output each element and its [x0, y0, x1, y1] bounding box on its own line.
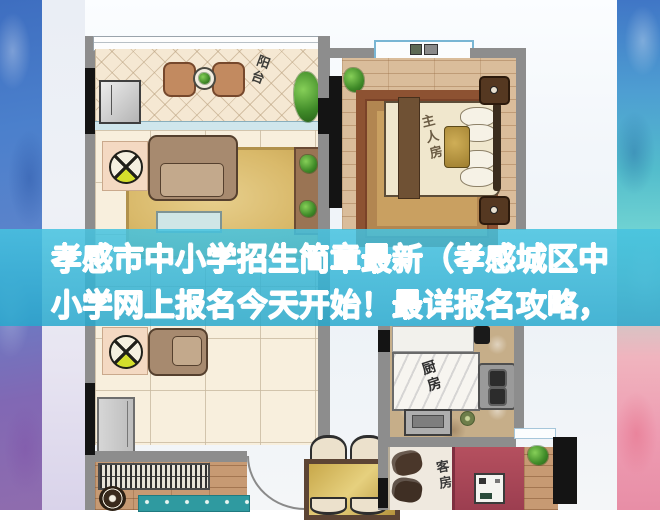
guest-black-wall — [553, 437, 577, 504]
device-button-2 — [495, 479, 500, 483]
nightstand-knob — [490, 86, 498, 94]
kitchen-wall-dark-1 — [378, 330, 390, 352]
window-line — [94, 42, 326, 43]
planter-plant-2 — [300, 201, 316, 217]
kitchen-bottom-wall — [388, 437, 516, 447]
master-top-wall-right — [470, 48, 518, 58]
sofa-armchair-top — [148, 135, 238, 201]
lamp-symbol-1 — [109, 150, 143, 184]
guest-device — [474, 473, 505, 504]
nightstand-2 — [479, 196, 510, 225]
balcony-table — [193, 67, 216, 90]
master-plant — [344, 68, 364, 92]
bed-runner — [398, 97, 420, 199]
device-screen — [480, 493, 492, 499]
headline-line-2: 小学网上报名今天开始！最详报名攻略， — [0, 283, 660, 329]
side-table-1 — [102, 141, 148, 191]
headline-line-1: 孝感市中小学招生简章最新（孝感城区中 — [0, 237, 660, 283]
sofa-armchair-bottom — [148, 328, 208, 376]
burner-2 — [488, 387, 507, 406]
article-cover-image: { "overlay": { "line1": "孝感市中小学招生简章最新（孝感… — [0, 0, 660, 510]
kitchen-right-wall — [514, 326, 524, 437]
balcony-chair-1 — [163, 62, 196, 97]
teal-rug — [138, 495, 250, 512]
window-art-2 — [424, 44, 438, 55]
master-window — [374, 40, 474, 60]
washer-panel — [104, 85, 112, 115]
kitchen-drain — [460, 411, 475, 426]
bed-pillow-4 — [460, 167, 496, 187]
dining-chair-3 — [310, 497, 347, 515]
side-table-2 — [102, 327, 148, 375]
left-wall-dark-segment — [85, 68, 95, 134]
nightstand-knob-2 — [490, 206, 498, 214]
left-wall-dark-segment-2 — [85, 383, 95, 455]
device-button-1 — [479, 478, 486, 484]
kitchen-sink — [404, 409, 452, 436]
stove — [478, 363, 516, 410]
kitchen-door-panel — [392, 326, 474, 352]
balcony-chair-2 — [212, 62, 245, 97]
guest-plant — [528, 446, 548, 465]
guest-window-sill — [514, 428, 556, 439]
master-top-wall-left — [330, 48, 374, 58]
nightstand-1 — [479, 76, 510, 105]
sofa-seat — [160, 163, 224, 197]
sink-basin — [412, 415, 444, 428]
burner-1 — [488, 369, 507, 388]
balcony-plant — [294, 72, 320, 122]
sofa-seat-2 — [172, 336, 202, 366]
headline-band: 孝感市中小学招生简章最新（孝感城区中 小学网上报名今天开始！最详报名攻略， — [0, 229, 660, 326]
bottom-bedroom-wall — [95, 451, 247, 462]
planter-plant-1 — [300, 155, 317, 173]
gold-cushion — [444, 126, 470, 168]
hall-cabinet — [97, 397, 135, 455]
washing-machine — [99, 80, 141, 124]
tv-feature-wall — [329, 76, 342, 208]
lamp-symbol-2 — [109, 335, 143, 369]
master-right-wall — [516, 48, 526, 230]
cabinet-line — [127, 401, 128, 447]
window-art-1 — [410, 44, 422, 55]
bed-headboard — [493, 103, 501, 191]
table-plant — [199, 73, 210, 84]
stool — [99, 486, 126, 511]
